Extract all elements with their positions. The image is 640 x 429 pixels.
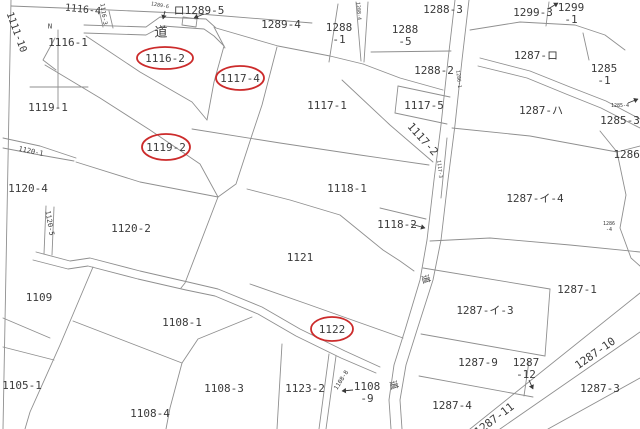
parcel-label-1116-4: 1116-4 xyxy=(64,3,101,18)
boundary-1109-1105 xyxy=(3,318,50,338)
arrow-1108-9 xyxy=(342,390,353,391)
parcel-label-1121: 1121 xyxy=(287,251,314,264)
boundary-1117-5-box-south xyxy=(395,113,447,124)
parcel-label-1287-11: 1287-11 xyxy=(472,400,517,429)
boundary-1288-5-1288-2 xyxy=(371,51,451,52)
parcel-label-1286-4: 1286-4 xyxy=(603,221,615,233)
boundary-1287i3-south xyxy=(421,334,545,356)
parcel-label-1287-1: 1287-1 xyxy=(557,283,597,296)
road-sw-south-edge xyxy=(33,260,376,373)
strip-1288-4-east xyxy=(364,2,368,62)
arrow-1287-12 xyxy=(529,380,533,389)
boundary-1287i4-south xyxy=(430,238,640,252)
parcel-label-1117-1: 1117-1 xyxy=(307,99,347,112)
parcel-label-1287-12: 1287-12 xyxy=(513,356,540,381)
boundary-1119-1-east xyxy=(45,65,218,197)
parcel-label-1117-4: 1117-4 xyxy=(220,72,260,85)
parcel-label-1287-4: 1287-4 xyxy=(432,399,472,412)
parcel-label-1118-2: 1118-2 xyxy=(377,218,417,231)
parcel-label-1105-1: 1105-1 xyxy=(2,379,42,392)
parcel-label-1116-3: 1116-3 xyxy=(98,3,108,26)
parcel-label-1286: 1286- xyxy=(613,148,640,161)
red-highlight-ellipses xyxy=(137,47,353,341)
boundary-1287i3-north xyxy=(423,268,550,289)
parcel-label-1117-5: 1117-5 xyxy=(404,99,444,112)
parcel-label-1289-5: ロ1289-5 xyxy=(174,4,225,17)
parcel-label-1285-4: 1285-4 xyxy=(611,103,629,109)
boundary-1117-5-box-west xyxy=(395,86,398,113)
parcel-labels: 1111-10N1116-11116-41116-31289-6ロ1289-5道… xyxy=(2,1,640,429)
parcel-label-: 道 xyxy=(387,379,401,391)
parcel-label-1108-3: 1108-3 xyxy=(204,382,244,395)
parcel-label-1119-1: 1119-1 xyxy=(28,101,68,114)
parcel-label-1287: 1287-ハ xyxy=(519,104,563,117)
parcel-boundaries xyxy=(3,0,640,429)
parcel-label-1287-4: 1287-イ-4 xyxy=(506,192,564,205)
parcel-label-1108-4: 1108-4 xyxy=(130,407,170,420)
road-top-mid-edge xyxy=(84,17,363,64)
parcel-label-: 道 xyxy=(419,273,433,285)
parcel-label-1122: 1122 xyxy=(319,323,346,336)
parcel-label-1287-10: 1287-10 xyxy=(572,335,617,372)
parcel-label-1117-3: 1117-3 xyxy=(435,160,443,179)
boundary-1105-north xyxy=(3,347,54,360)
boundary-1117-5-box-top xyxy=(398,86,450,97)
parcel-label-1118-1: 1118-1 xyxy=(327,182,367,195)
parcel-label-1120-4: 1120-4 xyxy=(8,182,48,195)
parcel-label-1299-3: 1299-3 xyxy=(513,6,553,19)
parcel-label-1287-3: 1287-イ-3 xyxy=(456,304,513,317)
arrow-1285-4 xyxy=(628,99,638,103)
parcel-label-1109: 1109 xyxy=(26,291,53,304)
parcel-label-1285-3: 1285-3 xyxy=(600,114,640,127)
cadastral-map: 1111-10N1116-11116-41116-31289-6ロ1289-5道… xyxy=(0,0,640,429)
parcel-label-1287-3: 1287-3 xyxy=(580,382,620,395)
road-sw-north-edge xyxy=(36,252,380,367)
parcel-label-1116-1: 1116-1 xyxy=(48,36,88,49)
parcel-label-1288-5: 1288-5 xyxy=(392,23,419,48)
parcel-label-1288-2: 1288-2 xyxy=(414,64,454,77)
boundary-1287ro-1285-1 xyxy=(583,33,589,60)
boundary-1287ha-1287i4 xyxy=(452,128,617,152)
boundary-1287i3-east xyxy=(545,289,550,356)
parcel-label-1287-9: 1287-9 xyxy=(458,356,498,369)
label-arrows xyxy=(163,3,638,391)
parcel-label-N: N xyxy=(48,22,52,30)
parcel-label-1288-3: 1288-3 xyxy=(423,3,463,16)
parcel-label-1289-4: 1289-4 xyxy=(261,18,301,31)
cadastral-map-svg: 1111-10N1116-11116-41116-31289-6ロ1289-5道… xyxy=(0,0,640,429)
parcel-label-1108-8: 1108-8 xyxy=(333,369,351,391)
parcel-label-1116-2: 1116-2 xyxy=(145,52,185,65)
parcel-label-1111-10: 1111-10 xyxy=(4,11,29,54)
parcel-label-1288-1: 1288-1 xyxy=(326,21,353,46)
boundary-1117-1-1117-2 xyxy=(342,80,433,162)
parcel-label-1288-4: 1288-4 xyxy=(354,2,362,21)
frame-left xyxy=(3,0,11,429)
boundary-1286-edge xyxy=(617,152,640,266)
boundary-1119-2-south xyxy=(76,162,218,197)
parcel-label-1108-9: 1108-9 xyxy=(354,380,381,405)
parcel-label-1287: 1287-ロ xyxy=(514,49,558,62)
parcel-label-1286-1: 1286-1 xyxy=(454,70,462,89)
boundary-1299-south xyxy=(470,22,625,50)
parcel-label-1120-2: 1120-2 xyxy=(111,222,151,235)
parcel-label-: 道 xyxy=(154,26,167,41)
parcel-label-1289-6: 1289-6 xyxy=(150,1,169,10)
parcel-label-1123-2: 1123-2 xyxy=(285,382,325,395)
boundary-1116-2-south xyxy=(86,36,207,120)
parcel-label-1299-1: 1299-1 xyxy=(558,1,585,26)
parcel-label-1120-1: 1120-1 xyxy=(18,145,44,158)
boundary-1117-1118 xyxy=(192,129,429,165)
boundary-1117-4-east xyxy=(252,47,277,135)
parcel-label-1285-1: 1285-1 xyxy=(591,62,618,87)
parcel-label-1119-2: 1119-2 xyxy=(146,141,186,154)
parcel-label-1108-1: 1108-1 xyxy=(162,316,202,329)
boundary-1108-3-1123-2 xyxy=(277,344,282,429)
